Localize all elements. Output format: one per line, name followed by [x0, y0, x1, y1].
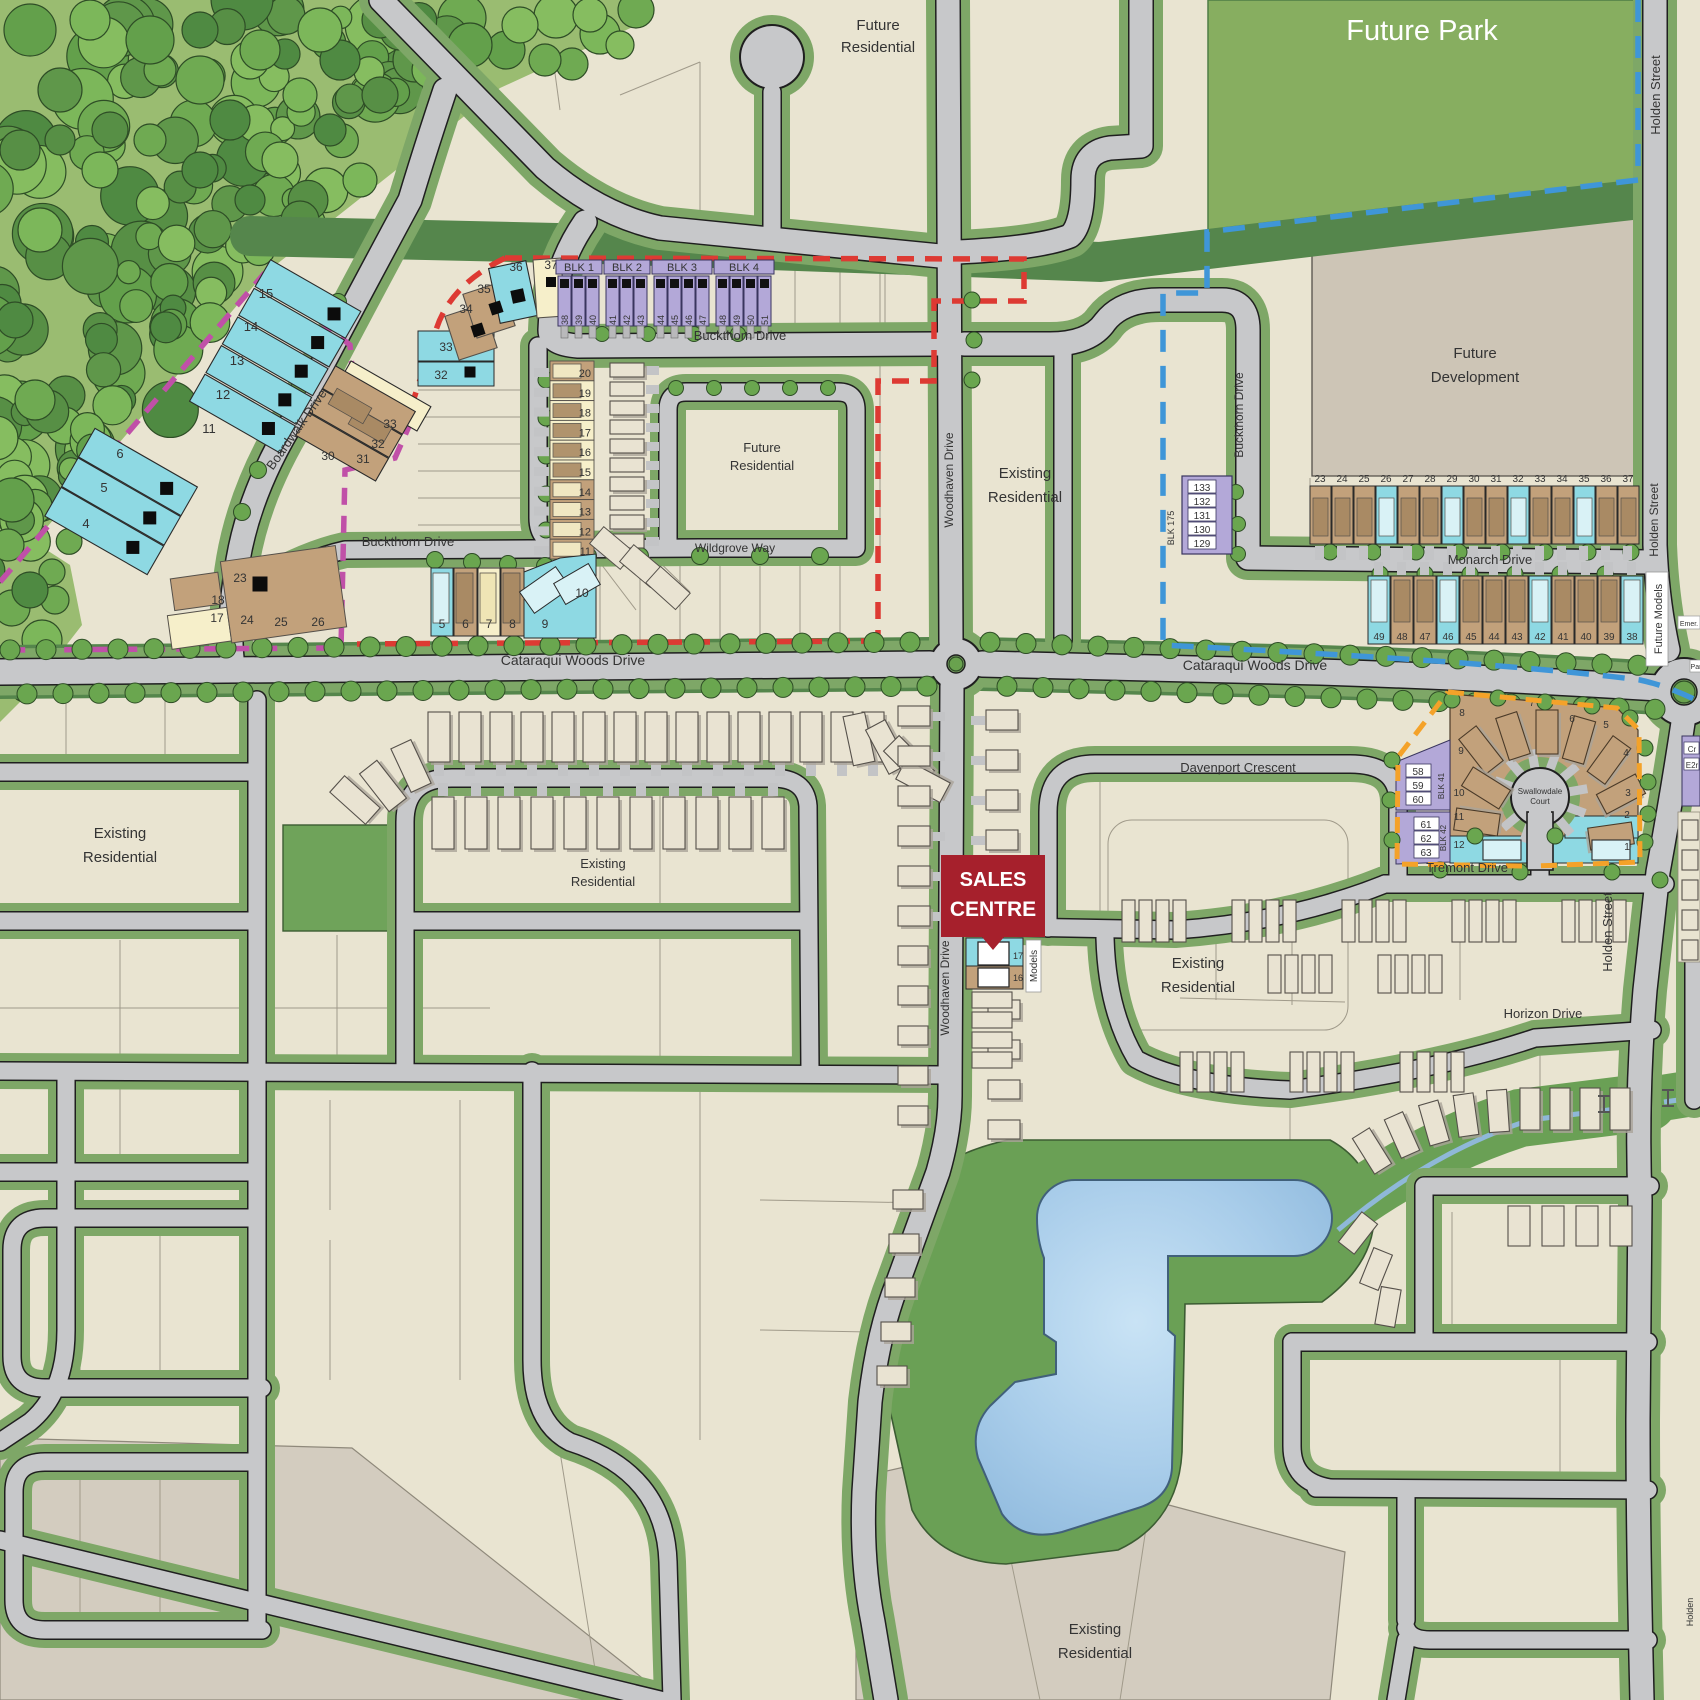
- svg-text:33: 33: [1534, 474, 1546, 485]
- svg-text:12: 12: [579, 526, 591, 538]
- svg-text:63: 63: [1420, 848, 1432, 859]
- svg-text:39: 39: [574, 315, 584, 325]
- svg-text:BLK 1: BLK 1: [564, 262, 594, 274]
- svg-text:Future: Future: [743, 440, 781, 455]
- svg-text:48: 48: [718, 315, 728, 325]
- svg-text:5: 5: [439, 617, 446, 631]
- svg-text:48: 48: [1396, 632, 1408, 643]
- svg-text:Cataraqui Woods Drive: Cataraqui Woods Drive: [1183, 657, 1328, 673]
- svg-text:32: 32: [434, 368, 448, 382]
- svg-text:5: 5: [100, 480, 107, 495]
- svg-text:Future: Future: [856, 17, 899, 34]
- svg-text:28: 28: [1424, 474, 1436, 485]
- svg-text:Tremont Drive: Tremont Drive: [1426, 860, 1508, 875]
- svg-text:31: 31: [356, 452, 370, 466]
- svg-text:25: 25: [1358, 474, 1370, 485]
- svg-text:129: 129: [1194, 539, 1211, 550]
- svg-text:23: 23: [233, 571, 247, 585]
- svg-text:41: 41: [608, 315, 618, 325]
- svg-text:50: 50: [746, 315, 756, 325]
- svg-text:47: 47: [698, 315, 708, 325]
- svg-text:Holden: Holden: [1685, 1598, 1695, 1627]
- svg-text:Swallowdale: Swallowdale: [1518, 787, 1563, 796]
- svg-text:36: 36: [1600, 474, 1612, 485]
- svg-text:Residential: Residential: [83, 849, 157, 866]
- svg-text:BLK 2: BLK 2: [612, 262, 642, 274]
- svg-text:32: 32: [371, 437, 385, 451]
- svg-text:Court: Court: [1530, 797, 1550, 806]
- svg-text:18: 18: [579, 408, 591, 420]
- svg-text:Cataraqui Woods Drive: Cataraqui Woods Drive: [501, 652, 646, 668]
- svg-text:Existing: Existing: [580, 856, 626, 871]
- svg-text:Existing: Existing: [94, 825, 147, 842]
- svg-text:BLK 42: BLK 42: [1439, 824, 1448, 851]
- svg-text:Wildgrove Way: Wildgrove Way: [695, 541, 775, 555]
- svg-text:6: 6: [1569, 714, 1575, 725]
- svg-text:23: 23: [1314, 474, 1326, 485]
- svg-text:34: 34: [459, 302, 473, 316]
- svg-text:45: 45: [670, 315, 680, 325]
- svg-text:10: 10: [575, 586, 589, 600]
- svg-text:Residential: Residential: [988, 489, 1062, 506]
- svg-text:Existing: Existing: [999, 465, 1052, 482]
- svg-text:4: 4: [1623, 748, 1629, 759]
- svg-text:14: 14: [579, 487, 591, 499]
- svg-text:SALES: SALES: [960, 869, 1027, 891]
- svg-text:Future Park: Future Park: [1346, 15, 1498, 47]
- svg-text:Woodhaven Drive: Woodhaven Drive: [938, 940, 952, 1035]
- svg-text:60: 60: [1412, 795, 1424, 806]
- svg-text:30: 30: [321, 449, 335, 463]
- svg-text:17: 17: [210, 611, 224, 625]
- svg-text:39: 39: [1603, 632, 1615, 643]
- svg-text:13: 13: [579, 507, 591, 519]
- svg-text:37: 37: [1622, 474, 1634, 485]
- svg-text:Buckthorn Drive: Buckthorn Drive: [362, 534, 454, 549]
- svg-text:Davenport Crescent: Davenport Crescent: [1180, 760, 1296, 775]
- svg-text:7: 7: [486, 617, 493, 631]
- svg-text:32: 32: [1512, 474, 1524, 485]
- svg-text:26: 26: [311, 615, 325, 629]
- svg-text:Future: Future: [1453, 345, 1496, 362]
- svg-text:8: 8: [1459, 708, 1465, 719]
- svg-text:11: 11: [1454, 812, 1465, 823]
- svg-text:33: 33: [383, 417, 397, 431]
- svg-text:62: 62: [1420, 834, 1432, 845]
- svg-text:44: 44: [1488, 632, 1500, 643]
- svg-text:9: 9: [542, 617, 549, 631]
- svg-text:10: 10: [1453, 788, 1465, 799]
- svg-text:3: 3: [1625, 788, 1631, 799]
- svg-text:Residential: Residential: [1161, 979, 1235, 996]
- svg-text:Residential: Residential: [841, 39, 915, 56]
- svg-text:27: 27: [1402, 474, 1414, 485]
- svg-text:6: 6: [462, 617, 469, 631]
- svg-text:6: 6: [116, 446, 123, 461]
- svg-text:61: 61: [1420, 820, 1432, 831]
- svg-text:2: 2: [1624, 810, 1630, 821]
- svg-text:BLK 41: BLK 41: [1437, 772, 1446, 799]
- svg-text:15: 15: [579, 467, 591, 479]
- svg-text:46: 46: [1442, 632, 1454, 643]
- svg-text:4: 4: [82, 516, 89, 531]
- svg-text:15: 15: [259, 286, 273, 301]
- svg-text:Emer.: Emer.: [1680, 621, 1698, 628]
- svg-text:BLK 175: BLK 175: [1166, 511, 1176, 546]
- svg-text:131: 131: [1194, 511, 1211, 522]
- svg-text:35: 35: [1578, 474, 1590, 485]
- svg-text:58: 58: [1412, 767, 1424, 778]
- svg-text:Existing: Existing: [1172, 955, 1225, 972]
- svg-text:24: 24: [1336, 474, 1348, 485]
- svg-text:Buckthorn Drive: Buckthorn Drive: [1232, 372, 1246, 458]
- svg-text:49: 49: [1373, 632, 1385, 643]
- svg-text:18: 18: [211, 593, 225, 607]
- svg-text:47: 47: [1419, 632, 1431, 643]
- svg-text:38: 38: [560, 315, 570, 325]
- svg-text:130: 130: [1194, 525, 1211, 536]
- svg-text:12: 12: [1453, 840, 1465, 851]
- svg-text:133: 133: [1194, 483, 1211, 494]
- svg-text:19: 19: [579, 388, 591, 400]
- svg-text:35: 35: [477, 282, 491, 296]
- svg-text:20: 20: [579, 368, 591, 380]
- svg-text:Development: Development: [1431, 369, 1520, 386]
- svg-text:16: 16: [1013, 973, 1023, 983]
- svg-text:45: 45: [1465, 632, 1477, 643]
- svg-text:14: 14: [244, 319, 258, 334]
- svg-text:Residential: Residential: [730, 458, 794, 473]
- svg-text:51: 51: [760, 315, 770, 325]
- svg-text:42: 42: [622, 315, 632, 325]
- svg-text:25: 25: [274, 615, 288, 629]
- svg-text:29: 29: [1446, 474, 1458, 485]
- svg-text:12: 12: [216, 387, 230, 402]
- svg-text:Woodhaven Drive: Woodhaven Drive: [942, 432, 956, 527]
- svg-text:Future Models: Future Models: [1653, 583, 1665, 654]
- svg-text:1: 1: [1624, 842, 1630, 853]
- svg-text:Holden Street: Holden Street: [1648, 55, 1663, 135]
- svg-text:Cr: Cr: [1688, 745, 1697, 754]
- svg-text:43: 43: [1511, 632, 1523, 643]
- svg-text:30: 30: [1468, 474, 1480, 485]
- svg-text:36: 36: [509, 260, 523, 274]
- svg-text:42: 42: [1534, 632, 1546, 643]
- svg-text:Holden Street: Holden Street: [1600, 892, 1615, 972]
- svg-text:44: 44: [656, 315, 666, 325]
- svg-text:17: 17: [1013, 951, 1023, 961]
- svg-text:34: 34: [1556, 474, 1568, 485]
- svg-text:17: 17: [579, 427, 591, 439]
- svg-text:E2r: E2r: [1686, 761, 1699, 770]
- svg-text:59: 59: [1412, 781, 1424, 792]
- svg-text:40: 40: [588, 315, 598, 325]
- svg-text:BLK 3: BLK 3: [667, 262, 697, 274]
- svg-text:Par: Par: [1691, 664, 1700, 671]
- svg-text:Existing: Existing: [1069, 1621, 1122, 1638]
- svg-text:BLK 4: BLK 4: [729, 262, 759, 274]
- svg-text:132: 132: [1194, 497, 1211, 508]
- svg-text:CENTRE: CENTRE: [950, 898, 1036, 921]
- svg-text:43: 43: [636, 315, 646, 325]
- svg-text:Residential: Residential: [571, 874, 635, 889]
- svg-text:Residential: Residential: [1058, 1645, 1132, 1662]
- svg-text:Horizon Drive: Horizon Drive: [1504, 1006, 1583, 1021]
- svg-text:Holden Street: Holden Street: [1647, 483, 1661, 557]
- svg-text:31: 31: [1490, 474, 1502, 485]
- svg-text:24: 24: [240, 613, 254, 627]
- svg-text:Monarch Drive: Monarch Drive: [1448, 552, 1533, 567]
- svg-text:5: 5: [1603, 720, 1609, 731]
- svg-text:26: 26: [1380, 474, 1392, 485]
- svg-text:46: 46: [684, 315, 694, 325]
- svg-text:8: 8: [509, 617, 516, 631]
- svg-text:Models: Models: [1029, 950, 1040, 982]
- svg-text:49: 49: [732, 315, 742, 325]
- svg-text:38: 38: [1626, 632, 1638, 643]
- svg-text:40: 40: [1580, 632, 1592, 643]
- svg-text:9: 9: [1458, 746, 1464, 757]
- svg-text:11: 11: [202, 421, 216, 436]
- svg-text:33: 33: [439, 340, 453, 354]
- svg-text:Buckthorn Drive: Buckthorn Drive: [694, 328, 786, 343]
- svg-text:13: 13: [230, 353, 244, 368]
- svg-text:16: 16: [579, 447, 591, 459]
- svg-text:41: 41: [1557, 632, 1569, 643]
